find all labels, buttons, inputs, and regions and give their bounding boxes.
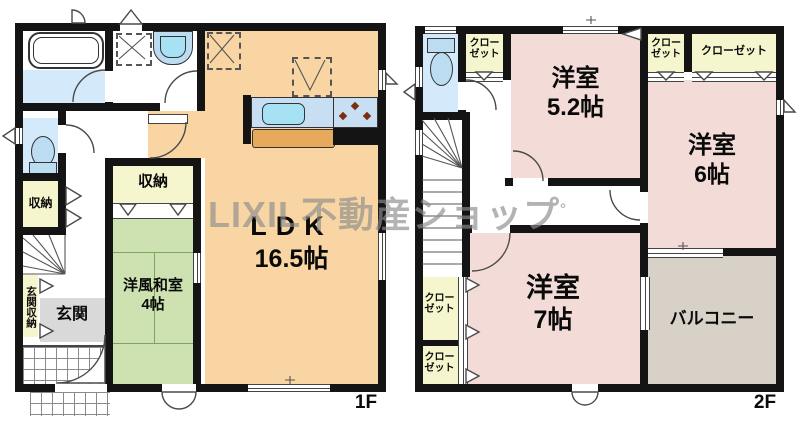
window-flap-2f-left (404, 84, 415, 100)
window-1f-left (15, 128, 23, 144)
entrance-tile-inside (23, 345, 105, 386)
room-label-washitsu: 洋風和室 4帖 (109, 278, 197, 313)
window-1f-right-lower (378, 233, 386, 280)
outer-wall-2f-bottom (415, 384, 784, 392)
kitchen-counter-divider (333, 97, 334, 128)
label-genkan: 玄関 (42, 306, 102, 324)
window-tick-2f-top (586, 16, 596, 24)
window-2f-right-6 (776, 100, 784, 115)
wall-balcony-top-right (723, 248, 780, 256)
tatami-line (113, 252, 193, 253)
wall-storage-bottom (23, 227, 66, 235)
bedroom-6-door-arc (610, 190, 640, 220)
closet-b-line2: ゼット (648, 49, 684, 60)
toilet-2f-door-arc (466, 80, 496, 110)
toilet-1f-door-gap (58, 125, 66, 153)
window-flap-1f-right (386, 73, 397, 84)
washitsu-outside-door-swing (162, 392, 196, 409)
bedroom-52-name: 洋室 (511, 66, 640, 92)
kitchen-wall-stub (243, 95, 251, 144)
closet-wide-front (692, 72, 776, 82)
label-closet-c: クロー ゼット (421, 293, 458, 315)
toilet-2f-tank (427, 38, 455, 53)
stairs-2f-fan (422, 118, 462, 168)
window-1f-right-upper (378, 70, 386, 90)
bath-door-gap (105, 71, 113, 102)
bedroom-6-name: 洋室 (648, 133, 776, 159)
kitchen-sink (262, 103, 305, 125)
floor-plan: LDK 16.5帖 洋風和室 4帖 収納 収納 玄関 玄関収納 1F 洋室 5.… (0, 0, 800, 428)
washitsu-name: 洋風和室 (109, 278, 197, 295)
bedroom-7-name: 洋室 (466, 274, 640, 304)
storage-center-door-strip (113, 203, 193, 219)
room-bathroom-floor (23, 70, 105, 103)
toilet-2f-door-gap (458, 82, 466, 110)
closet-c-line1: クロー (421, 293, 458, 304)
closet-d-line1: クロー (421, 352, 458, 363)
wall-closeta-right (503, 34, 511, 80)
bedroom-52-door-gap (513, 178, 548, 186)
outer-wall-1f-top (15, 23, 386, 31)
wall-storage-center-top (105, 158, 201, 166)
window-2f-top-52 (563, 26, 618, 34)
kitchen-cabinet (252, 129, 335, 148)
label-closet-a: クロー ゼット (466, 38, 503, 60)
window-flap-1f-left (3, 128, 15, 144)
closet-a-line1: クロー (466, 38, 503, 49)
closet-b-line1: クロー (648, 38, 684, 49)
window-2f-left-upper (415, 67, 423, 87)
fold-door-storage-side-1 (66, 187, 81, 205)
washroom-door-arc (165, 71, 197, 103)
bathtub-inner (33, 37, 99, 64)
outer-wall-1f-left (15, 23, 23, 392)
kitchen-wall-under-stove (333, 128, 378, 145)
roof-vent-sail (72, 10, 85, 23)
bedroom-52-size: 5.2帖 (511, 95, 640, 121)
label-closet-d: クロー ゼット (421, 352, 458, 374)
wall-closet-cd-divider (421, 340, 458, 346)
bedroom-6-door-gap (640, 192, 648, 223)
washroom-door-gap (160, 103, 197, 111)
refrigerator-space (292, 57, 332, 97)
washitsu-outside-door-gap (162, 384, 196, 392)
wall-toilet-bottom (23, 173, 58, 181)
label-closet-wide: クローゼット (692, 45, 776, 57)
wall-washitsu-left (105, 158, 113, 384)
wall-closetb-divider (684, 34, 692, 72)
outer-wall-2f-right (776, 26, 784, 392)
washer-space (116, 33, 152, 66)
closet-b-front (648, 72, 684, 82)
label-storage-center: 収納 (113, 174, 193, 191)
room-label-bedroom-52: 洋室 5.2帖 (511, 66, 640, 122)
ldk-equipment-space (207, 32, 241, 70)
toilet-1f-door-arc (66, 125, 94, 153)
window-flap-2f-right (784, 100, 795, 112)
bedroom-6-size: 6帖 (648, 162, 776, 187)
washbasin-bowl (160, 36, 186, 58)
wall-washroom-ldk (197, 31, 205, 111)
tatami-line (113, 343, 193, 344)
ldk-size: 16.5帖 (205, 246, 378, 274)
fold-door-storage-side-2 (66, 209, 81, 227)
washbasin (153, 31, 193, 65)
closet-d-line2: ゼット (421, 363, 458, 374)
floor-label-1f: 1F (348, 393, 384, 414)
balcony-sliding-door (648, 248, 723, 258)
toilet-2f-bowl (430, 52, 453, 86)
closet-a-front (466, 72, 503, 82)
window-2f-left-lower (415, 130, 423, 155)
window-2f-bottom-gap (572, 384, 598, 392)
washitsu-size: 4帖 (109, 297, 197, 314)
room-label-bedroom-6: 洋室 6帖 (648, 133, 776, 188)
label-closet-b: クロー ゼット (648, 38, 684, 60)
bedroom-7-outside-door-swing (572, 392, 598, 405)
watermark: LIXIL不動産ショップ° (208, 186, 567, 238)
entrance-tile-outside (30, 392, 110, 416)
bathtub (28, 32, 104, 69)
label-genkan-storage: 玄関収納 (24, 276, 38, 338)
watermark-text: LIXIL不動産ショップ (208, 194, 560, 235)
stairs-1f-lines (23, 235, 65, 274)
label-balcony: バルコニー (648, 310, 776, 329)
entrance-door-gap (55, 384, 107, 392)
room-label-bedroom-7: 洋室 7帖 (466, 274, 640, 334)
closet-a-line2: ゼット (466, 49, 503, 60)
closet-c-line2: ゼット (421, 304, 458, 315)
bedroom-7-size: 7帖 (466, 307, 640, 335)
vent-gap-top (120, 23, 142, 31)
label-storage-side: 収納 (23, 197, 58, 210)
window-1f-bottom-ldk (248, 384, 330, 392)
watermark-mark: ° (560, 201, 567, 218)
roof-vent-triangle (120, 10, 142, 24)
window-2f-top-toilet (425, 26, 456, 34)
fold-door-genkan-storage-1 (40, 279, 53, 293)
ldk-door-leaf (148, 114, 188, 124)
floor-label-2f: 2F (746, 393, 784, 414)
